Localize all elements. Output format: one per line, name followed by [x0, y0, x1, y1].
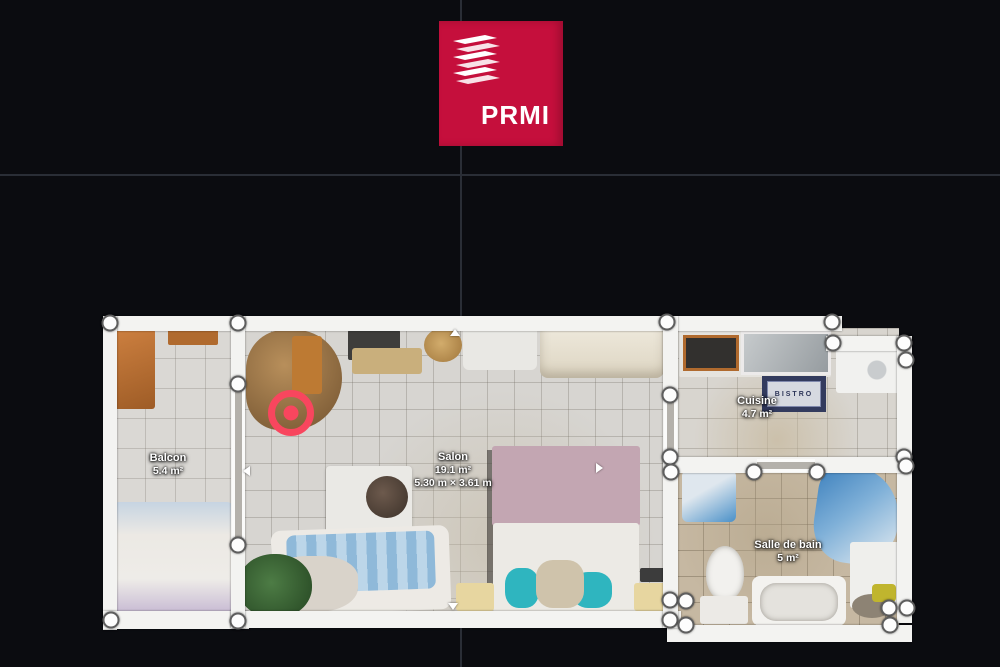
vertex-handle[interactable]: [102, 315, 119, 332]
vertex-handle[interactable]: [896, 335, 913, 352]
vertex-handle[interactable]: [230, 315, 247, 332]
vertex-handle[interactable]: [230, 537, 247, 554]
vertex-handle[interactable]: [678, 617, 695, 634]
vertex-handle[interactable]: [659, 314, 676, 331]
vertex-handle[interactable]: [882, 617, 899, 634]
vertex-handle[interactable]: [746, 464, 763, 481]
vertex-handle[interactable]: [809, 464, 826, 481]
room-label-salon: Salon 19.1 m² 5.30 m × 3.61 m: [392, 451, 514, 489]
room-name: Cuisine: [717, 395, 797, 408]
vertex-handle[interactable]: [230, 376, 247, 393]
vertex-handle[interactable]: [898, 352, 915, 369]
brand-logo-text: PRMI: [481, 100, 550, 131]
stacked-building-icon: [451, 31, 505, 87]
room-label-balcon: Balcon 5.4 m²: [128, 452, 208, 478]
brand-logo: PRMI: [439, 21, 563, 146]
vertex-handle[interactable]: [663, 464, 680, 481]
vertex-handle[interactable]: [898, 458, 915, 475]
vertex-handle[interactable]: [662, 592, 679, 609]
room-area: 4.7 m²: [717, 408, 797, 421]
room-name: Salon: [392, 451, 514, 464]
vertex-handle[interactable]: [230, 613, 247, 630]
room-area: 5.4 m²: [128, 465, 208, 478]
position-marker[interactable]: [268, 390, 314, 436]
room-name: Salle de bain: [738, 539, 838, 552]
vertex-handle[interactable]: [662, 612, 679, 629]
room-area: 5 m²: [738, 552, 838, 565]
vertex-handle[interactable]: [881, 600, 898, 617]
room-dimensions: 5.30 m × 3.61 m: [392, 477, 514, 490]
vertex-handle[interactable]: [825, 335, 842, 352]
room-name: Balcon: [128, 452, 208, 465]
vertex-handle[interactable]: [662, 387, 679, 404]
app-viewport: PRMI BISTRO: [0, 0, 1000, 667]
vertex-handle[interactable]: [824, 314, 841, 331]
vertex-handle[interactable]: [899, 600, 916, 617]
room-area: 19.1 m²: [392, 464, 514, 477]
vertex-handle[interactable]: [103, 612, 120, 629]
room-label-cuisine: Cuisine 4.7 m²: [717, 395, 797, 421]
vertex-handle[interactable]: [678, 593, 695, 610]
room-label-salle-de-bain: Salle de bain 5 m²: [738, 539, 838, 565]
